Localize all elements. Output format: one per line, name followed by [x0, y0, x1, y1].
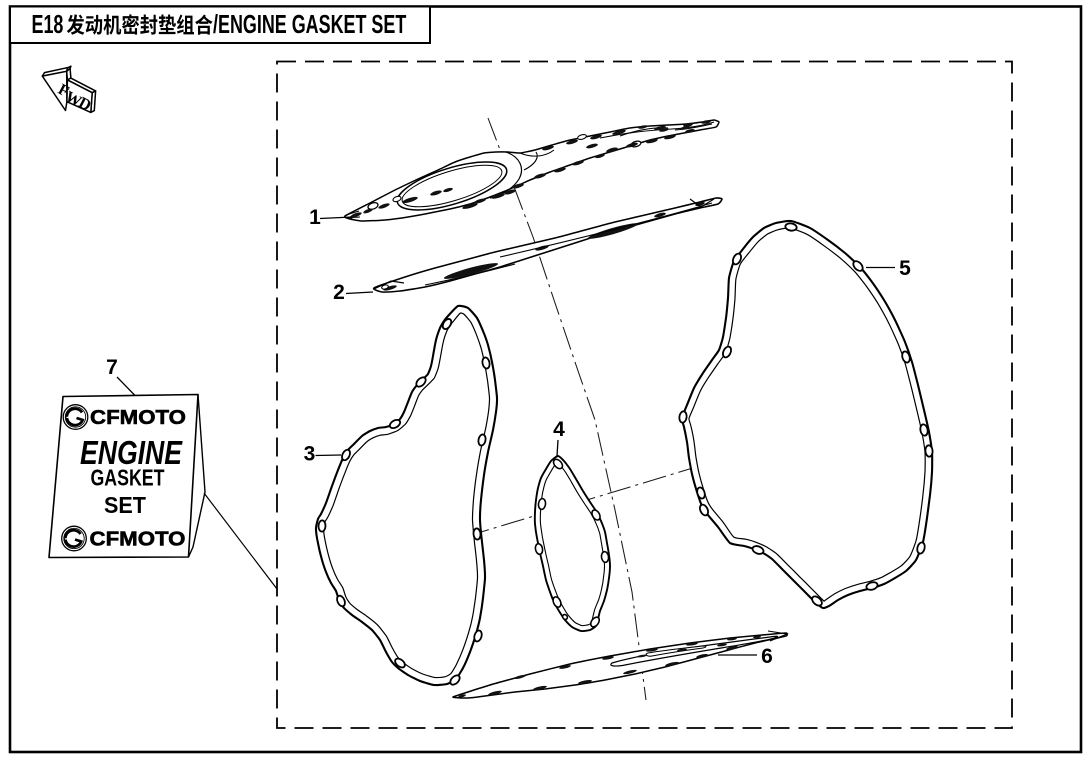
svg-text:CFMOTO: CFMOTO	[90, 407, 186, 429]
svg-text:1: 1	[309, 206, 321, 229]
svg-text:6: 6	[761, 645, 773, 668]
svg-text:CFMOTO: CFMOTO	[90, 529, 186, 551]
svg-text:/ENGINE GASKET SET: /ENGINE GASKET SET	[213, 10, 407, 39]
svg-text:SET: SET	[104, 492, 147, 518]
svg-text:4: 4	[553, 418, 565, 441]
svg-text:E18: E18	[32, 10, 64, 39]
svg-text:2: 2	[333, 281, 345, 304]
svg-text:3: 3	[304, 442, 316, 465]
svg-text:5: 5	[899, 257, 911, 280]
svg-text:GASKET: GASKET	[91, 465, 165, 491]
svg-text:7: 7	[106, 356, 118, 379]
